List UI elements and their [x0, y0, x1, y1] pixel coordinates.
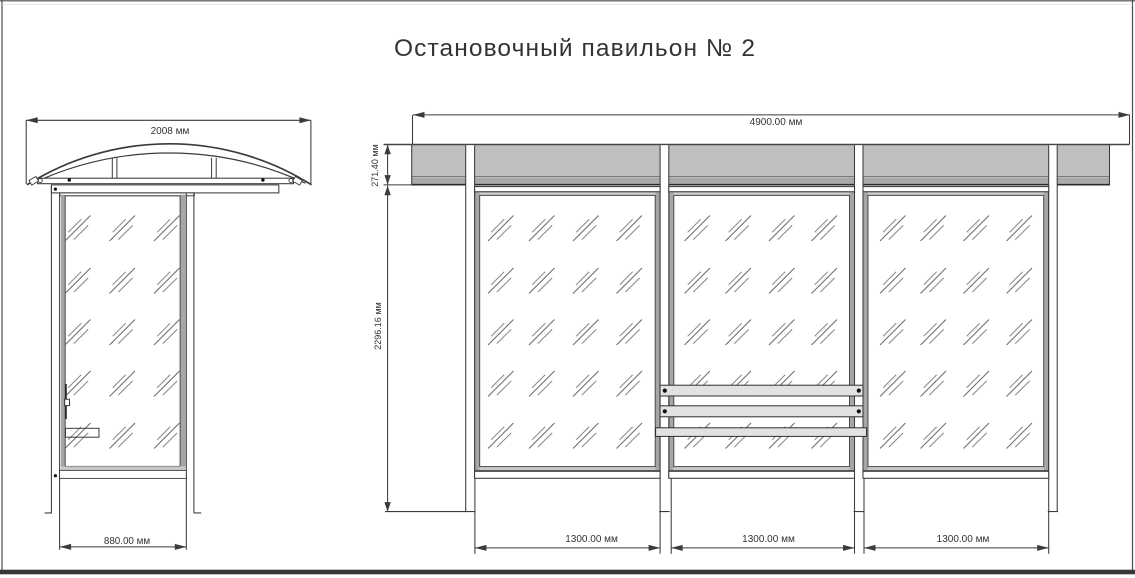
svg-text:1300.00 мм: 1300.00 мм [565, 534, 618, 545]
svg-text:2296.16 мм: 2296.16 мм [373, 302, 383, 349]
svg-text:1300.00 мм: 1300.00 мм [937, 534, 990, 545]
svg-text:1300.00 мм: 1300.00 мм [742, 534, 795, 545]
svg-text:2008 мм: 2008 мм [151, 126, 190, 137]
svg-text:880.00 мм: 880.00 мм [104, 536, 150, 547]
svg-text:271.40 мм: 271.40 мм [370, 144, 380, 186]
svg-text:4900.00 мм: 4900.00 мм [750, 117, 803, 128]
svg-text:Остановочный павильон № 2: Остановочный павильон № 2 [394, 35, 756, 62]
